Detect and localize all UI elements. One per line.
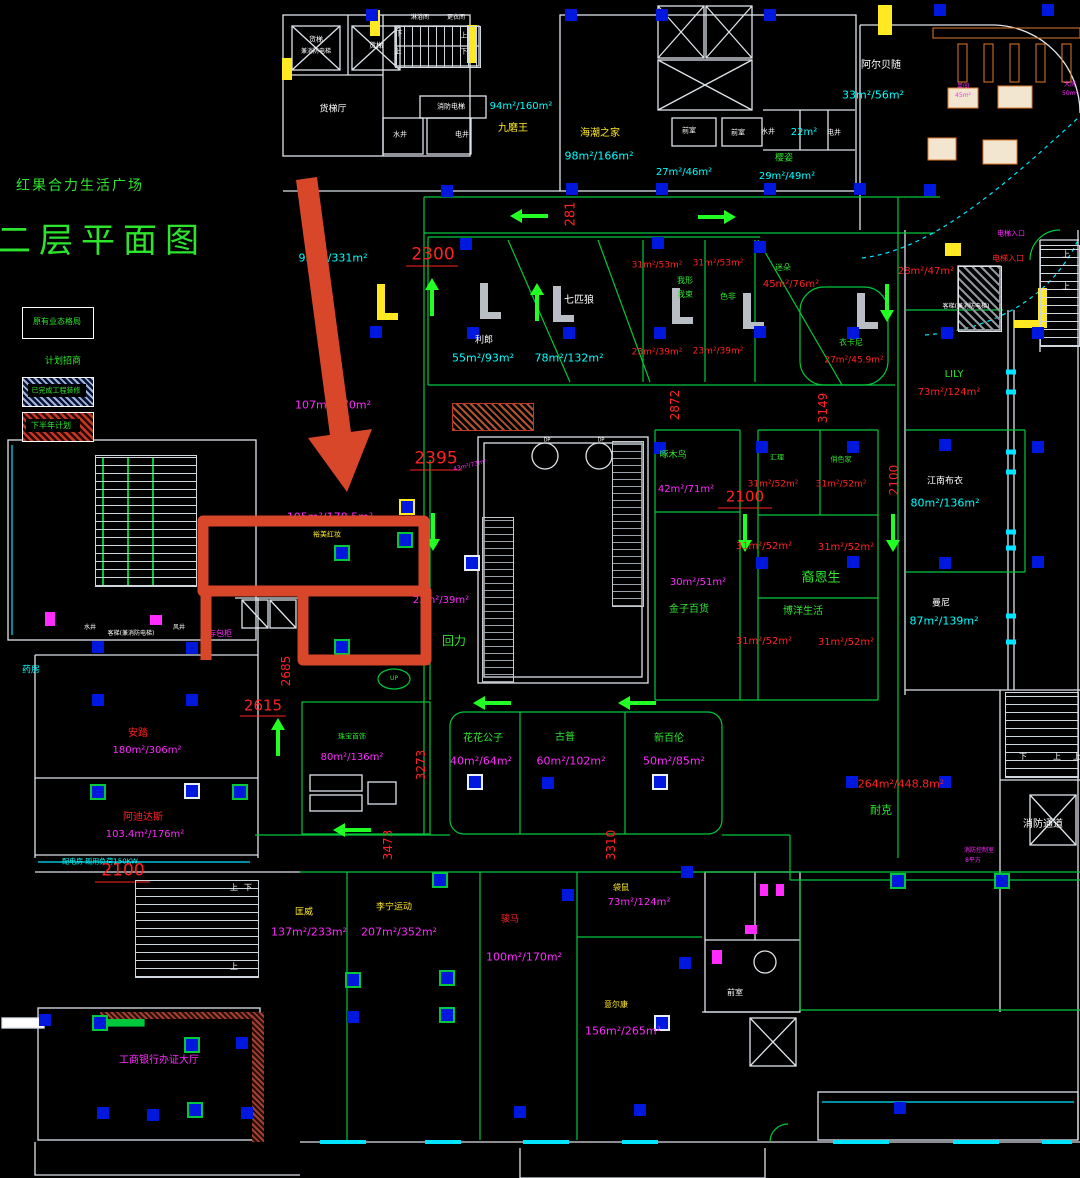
highlight-rect-top xyxy=(203,521,424,591)
annotation-arrow-shaft xyxy=(296,177,352,443)
floorplan-canvas: 红果合力生活广场二层平面图原有业态格局计划招商已完成工程装修下半年计划货梯兼消防… xyxy=(0,0,1080,1178)
highlight-rect-bottom xyxy=(303,591,426,660)
annotation-arrow-head xyxy=(308,429,372,492)
annotation-layer xyxy=(0,0,1080,1178)
